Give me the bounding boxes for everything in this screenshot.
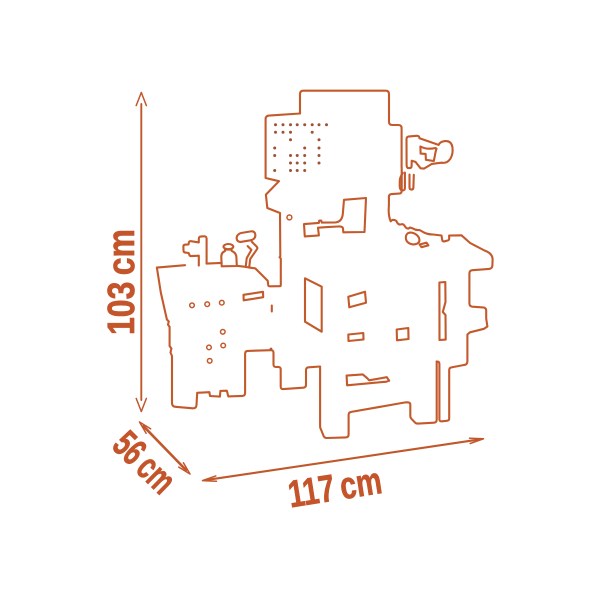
svg-text:103 cm: 103 cm <box>101 229 143 335</box>
svg-text:117 cm: 117 cm <box>285 460 384 516</box>
svg-text:56 cm: 56 cm <box>104 423 183 502</box>
